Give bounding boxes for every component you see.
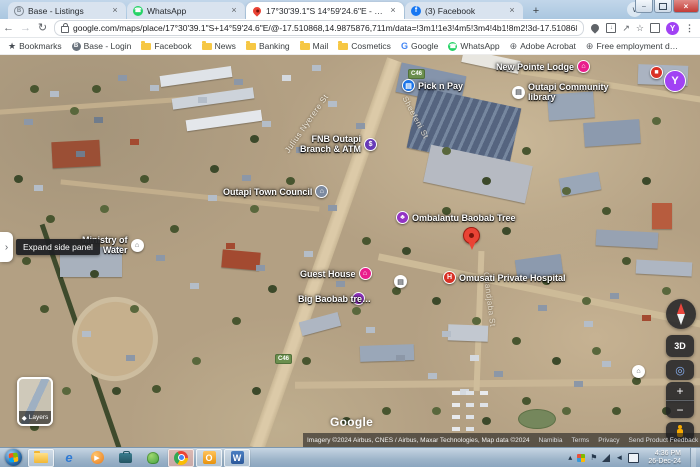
map-building — [186, 110, 263, 131]
browser-tab-strip: B Base - Listings × ☎ WhatsApp × 17°30'3… — [0, 0, 700, 19]
bookmark-base-login[interactable]: BBase - Login — [72, 41, 132, 51]
bookmark-folder-cosmetics[interactable]: Cosmetics — [338, 41, 391, 51]
tab-base-listings[interactable]: B Base - Listings × — [8, 2, 126, 19]
compass-control[interactable] — [666, 299, 696, 329]
tab-close-icon[interactable]: × — [229, 6, 239, 15]
windows-logo-icon — [9, 453, 19, 463]
action-center-flag-icon[interactable]: ⚑ — [590, 453, 597, 463]
media-player-icon: ▶ — [91, 451, 104, 464]
reload-button[interactable]: ↻ — [34, 20, 51, 37]
poi-label: New Pointe Lodge — [496, 62, 574, 72]
tab-google-maps-active[interactable]: 17°30'39.1"S 14°59'24.6"E - Go… × — [246, 2, 404, 19]
toolbar-actions: ↓ ↗ ☆ Y ⋮ — [590, 22, 700, 35]
bookmark-label: Adobe Acrobat — [520, 41, 576, 51]
government-building-icon: ⌂ — [315, 185, 328, 198]
feedback-link[interactable]: Send Product Feedback — [629, 437, 699, 444]
folder-icon — [141, 43, 151, 50]
terms-link[interactable]: Terms — [571, 437, 589, 444]
bookmark-label: Google — [411, 41, 438, 51]
new-tab-button[interactable]: + — [528, 3, 544, 18]
desktop-screen: B Base - Listings × ☎ WhatsApp × 17°30'3… — [0, 0, 700, 467]
poi-ombalantu-baobab-tree[interactable]: ♣ Ombalantu Baobab Tree — [396, 211, 516, 224]
chrome-icon — [174, 451, 188, 465]
map-road — [0, 96, 200, 116]
briefcase-icon — [119, 453, 132, 463]
browser-toolbar: ← → ↻ google.com/maps/place/17°30'39.1"S… — [0, 19, 700, 38]
profile-avatar[interactable]: Y — [666, 22, 679, 35]
folder-icon — [338, 43, 348, 50]
taskbar-chrome-active[interactable] — [168, 449, 194, 467]
bookmark-folder-banking[interactable]: Banking — [246, 41, 290, 51]
whatsapp-icon: ☎ — [448, 42, 457, 51]
whatsapp-favicon-icon: ☎ — [133, 6, 143, 16]
bookmark-label: Base - Login — [84, 41, 132, 51]
install-app-icon[interactable]: ↓ — [606, 23, 616, 33]
layers-control[interactable]: ◆ Layers — [17, 377, 53, 426]
poi-label: Outapi Town Council — [223, 187, 312, 197]
tray-grid-icon[interactable] — [577, 454, 585, 462]
input-indicator-icon[interactable] — [628, 453, 639, 463]
taskbar-briefcase-app[interactable] — [112, 449, 138, 467]
library-icon: ▤ — [512, 86, 525, 99]
map-building — [448, 324, 489, 341]
poi-label: Guest House — [300, 269, 356, 279]
taskbar-messenger-app[interactable] — [140, 449, 166, 467]
bookmark-google[interactable]: GGoogle — [401, 41, 438, 51]
bookmark-folder-mail[interactable]: Mail — [300, 41, 329, 51]
map-main-road — [250, 57, 402, 447]
poi-omusati-private-hospital[interactable]: H Omusati Private Hospital — [443, 271, 566, 284]
window-controls: – × — [635, 0, 700, 13]
tab-facebook[interactable]: f (3) Facebook × — [405, 2, 523, 19]
tab-label: WhatsApp — [147, 6, 225, 16]
windows-taskbar: e ▶ O W ▴ ⚑ ◄ 4:36 PM 26-Dec-24 — [0, 447, 700, 467]
bookmark-free-employment[interactable]: ⊕Free employment d… — [586, 41, 678, 52]
share-icon[interactable]: ↗ — [622, 22, 630, 34]
attraction-tree-icon: ♣ — [396, 211, 409, 224]
bookmark-star-icon[interactable]: ☆ — [636, 22, 644, 34]
map-road — [295, 378, 700, 389]
tab-close-icon[interactable]: × — [110, 6, 120, 15]
region-link[interactable]: Namibia — [539, 437, 563, 444]
road-badge-c46: C46 — [275, 354, 292, 364]
bookmark-label: Banking — [259, 41, 290, 51]
poi-new-pointe-lodge[interactable]: New Pointe Lodge ⌂ — [496, 60, 590, 73]
folder-icon — [34, 453, 48, 463]
base-favicon-icon: B — [14, 6, 24, 16]
window-minimize-button[interactable]: – — [635, 0, 653, 13]
poi-label: Outapi Community library — [528, 82, 609, 102]
taskbar-media-player[interactable]: ▶ — [84, 449, 110, 467]
layers-label: Layers — [29, 414, 49, 421]
internet-explorer-icon: e — [65, 451, 72, 464]
shopping-icon: ▤ — [402, 79, 415, 92]
star-icon: ★ — [8, 41, 16, 52]
taskbar-word[interactable]: W — [224, 449, 250, 467]
hospital-icon: H — [443, 271, 456, 284]
poi-pick-n-pay[interactable]: ▤ Pick n Pay — [402, 79, 463, 92]
map-sports-field — [63, 287, 168, 390]
poi-y-marker[interactable]: Y — [664, 70, 686, 92]
poi-label: Ombalantu Baobab Tree — [412, 213, 516, 223]
map-building — [172, 87, 255, 109]
map-building-red-roof — [51, 140, 100, 168]
bookmark-label: Mail — [313, 41, 329, 51]
https-lock-icon — [61, 26, 69, 33]
folder-icon — [246, 43, 256, 50]
bookmark-label: Facebook — [154, 41, 191, 51]
zoom-out-button[interactable]: − — [666, 400, 694, 418]
menu-dots-icon[interactable]: ⋮ — [685, 22, 694, 34]
bookmark-folder-facebook[interactable]: Facebook — [141, 41, 191, 51]
volume-icon[interactable]: ◄ — [615, 453, 623, 463]
bookmarks-manager[interactable]: ★Bookmarks — [8, 41, 62, 52]
poi-outapi-community-library[interactable]: ▤ Outapi Community library — [512, 82, 609, 102]
poi-red-icon[interactable]: ■ — [650, 66, 663, 79]
map-building — [596, 229, 659, 248]
map-pond — [518, 409, 556, 429]
poi-big-baobab[interactable]: Big Baobab tre… — [298, 294, 371, 304]
road-badge-c46: C46 — [408, 69, 425, 79]
poi-shop-icon[interactable]: ▤ — [394, 275, 407, 288]
tab-label: 17°30'39.1"S 14°59'24.6"E - Go… — [266, 6, 384, 16]
poi-label: Big Baobab tre… — [298, 294, 371, 304]
tab-label: (3) Facebook — [425, 6, 503, 16]
tab-label: Base - Listings — [28, 6, 106, 16]
expand-side-panel-tooltip: Expand side panel — [16, 239, 100, 255]
bookmark-label: Free employment d… — [596, 41, 678, 51]
guest-house-icon: ⌂ — [359, 267, 372, 280]
side-panel-icon[interactable] — [650, 23, 660, 33]
poi-label: Pick n Pay — [418, 81, 463, 91]
poi-label: Omusati Private Hospital — [459, 273, 566, 283]
google-g-icon: G — [401, 41, 408, 51]
network-icon[interactable] — [602, 454, 610, 462]
atm-bank-icon: $ — [364, 138, 377, 151]
bookmarks-bar: ★Bookmarks BBase - Login Facebook News B… — [0, 38, 700, 55]
outlook-icon: O — [203, 451, 216, 464]
tab-whatsapp[interactable]: ☎ WhatsApp × — [127, 2, 245, 19]
bookmark-label: Bookmarks — [19, 41, 62, 51]
map-trees — [0, 55, 9, 63]
ministry-icon: ⌂ — [131, 239, 144, 252]
layers-diamond-icon: ◆ — [22, 414, 27, 422]
facebook-favicon-icon: f — [411, 6, 421, 16]
map-building — [559, 172, 602, 197]
map-building — [160, 66, 233, 87]
map-attribution-bar: Imagery ©2024 Airbus, CNES / Airbus, Max… — [303, 433, 700, 447]
destination-pin[interactable] — [463, 227, 480, 244]
tab-close-icon[interactable]: × — [507, 6, 517, 15]
clock-date: 26-Dec-24 — [648, 458, 681, 466]
poi-guest-house[interactable]: Guest House ⌂ — [300, 267, 372, 280]
map-building — [360, 344, 415, 362]
taskbar-file-explorer[interactable] — [28, 449, 54, 467]
poi-church-icon[interactable]: ⌂ — [632, 365, 645, 378]
map-building — [583, 119, 641, 147]
address-bar[interactable]: google.com/maps/place/17°30'39.1"S+14°59… — [54, 20, 584, 36]
google-maps-satellite-canvas[interactable]: Julius Nyerere St Sheefeni St Onandjaba … — [0, 55, 700, 447]
taskbar-internet-explorer[interactable]: e — [56, 449, 82, 467]
word-icon: W — [231, 451, 244, 464]
imagery-attribution: Imagery ©2024 Airbus, CNES / Airbus, Max… — [307, 437, 530, 444]
bookmark-folder-news[interactable]: News — [202, 41, 236, 51]
taskbar-clock[interactable]: 4:36 PM 26-Dec-24 — [644, 450, 685, 466]
map-building — [636, 260, 693, 277]
3d-toggle-button[interactable]: 3D — [666, 335, 694, 357]
folder-icon — [202, 43, 212, 50]
system-tray: ▴ ⚑ ◄ 4:36 PM 26-Dec-24 — [568, 448, 700, 467]
map-building — [652, 203, 672, 229]
maps-save-pin-icon[interactable] — [590, 22, 601, 33]
back-button[interactable]: ← — [0, 20, 17, 37]
zoom-in-button[interactable]: + — [666, 382, 694, 400]
privacy-link[interactable]: Privacy — [598, 437, 619, 444]
maps-pin-favicon-icon — [251, 5, 262, 16]
bookmark-label: News — [215, 41, 236, 51]
taskbar-outlook[interactable]: O — [196, 449, 222, 467]
expand-side-panel-button[interactable]: › — [0, 232, 13, 262]
poi-label: FNB Outapi Branch & ATM — [300, 134, 361, 154]
google-watermark: Google — [330, 415, 373, 429]
show-desktop-button[interactable] — [690, 448, 696, 467]
forward-button[interactable]: → — [17, 20, 34, 37]
folder-icon — [300, 43, 310, 50]
globe-icon: ⊕ — [586, 41, 594, 52]
globe-icon: ⊕ — [510, 41, 518, 52]
url-text: google.com/maps/place/17°30'39.1"S+14°59… — [73, 23, 577, 33]
poi-fnb-outapi-branch-atm[interactable]: FNB Outapi Branch & ATM $ — [300, 134, 377, 154]
bookmark-whatsapp[interactable]: ☎WhatsApp — [448, 41, 499, 51]
layers-strip: ◆ Layers — [19, 411, 51, 424]
poi-outapi-town-council[interactable]: Outapi Town Council ⌂ — [223, 185, 328, 198]
map-building-red-roof — [221, 249, 260, 270]
base-icon: B — [72, 42, 81, 51]
clock-time: 4:36 PM — [648, 450, 681, 458]
start-button[interactable] — [5, 449, 22, 466]
my-location-button[interactable]: ◎ — [666, 360, 694, 380]
maximize-icon — [659, 3, 667, 10]
show-hidden-icons[interactable]: ▴ — [568, 453, 572, 463]
lodging-icon: ⌂ — [577, 60, 590, 73]
tab-close-icon[interactable]: × — [388, 6, 398, 15]
bookmark-adobe-acrobat[interactable]: ⊕Adobe Acrobat — [510, 41, 576, 52]
bookmark-label: WhatsApp — [460, 41, 499, 51]
bookmark-label: Cosmetics — [351, 41, 391, 51]
window-close-button[interactable]: × — [673, 0, 699, 13]
green-app-icon — [147, 452, 159, 464]
window-maximize-button[interactable] — [654, 0, 672, 13]
